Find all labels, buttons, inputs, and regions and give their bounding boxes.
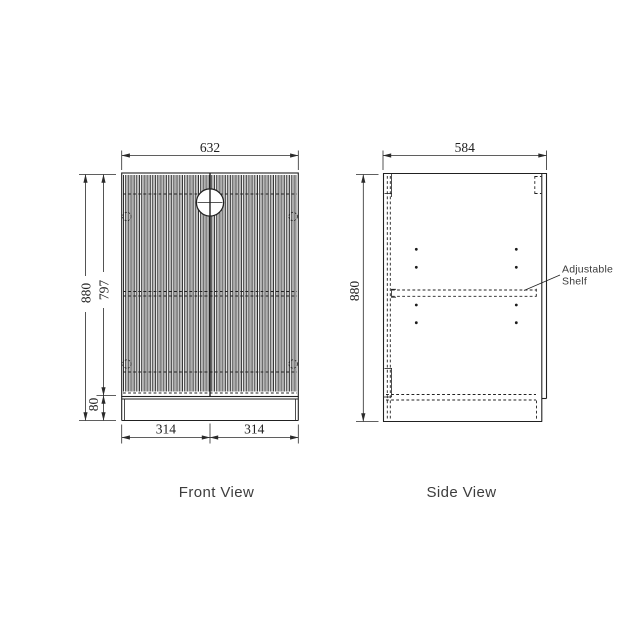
front-dim-plinth-height-value: 80: [86, 398, 101, 412]
front-plinth: [122, 397, 299, 421]
front-dim-height-value: 880: [78, 283, 93, 304]
front-view-caption: Front View: [179, 484, 254, 501]
side-dim-height: 880: [347, 175, 379, 422]
side-outline: [383, 173, 547, 422]
side-dim-depth-value: 584: [455, 140, 476, 155]
front-view: 632 880 797 80 314 314 Front View: [78, 140, 298, 501]
cabinet-dimension-drawing: 632 880 797 80 314 314 Front View: [0, 0, 640, 640]
side-view-caption: Side View: [426, 484, 496, 501]
front-dim-door-widths: 314 314: [122, 422, 299, 444]
side-view: 584 880 Adjustable Shelf Side View: [347, 140, 613, 501]
front-dim-width: 632: [122, 140, 299, 170]
shelf-pin-holes: [415, 248, 518, 324]
front-dim-half-left-value: 314: [156, 422, 177, 437]
shelf-note-line1: Adjustable: [562, 264, 613, 276]
technical-drawing-page: 632 880 797 80 314 314 Front View: [0, 0, 640, 640]
front-dim-half-right-value: 314: [244, 422, 265, 437]
side-bottom-panel-lines: [386, 395, 537, 421]
shelf-note-line2: Shelf: [562, 276, 587, 288]
front-dim-width-value: 632: [200, 140, 220, 155]
side-hidden-rail: [535, 176, 542, 194]
adjustable-shelf-lines: [391, 289, 536, 298]
side-dim-height-value: 880: [347, 281, 362, 302]
side-dim-depth: 584: [383, 140, 547, 170]
front-dim-heights: 880 797 80: [78, 175, 116, 421]
front-dim-door-height-value: 797: [96, 280, 111, 301]
side-door-hidden-lines: [387, 176, 390, 420]
adjustable-shelf-annotation: Adjustable Shelf: [524, 264, 613, 291]
